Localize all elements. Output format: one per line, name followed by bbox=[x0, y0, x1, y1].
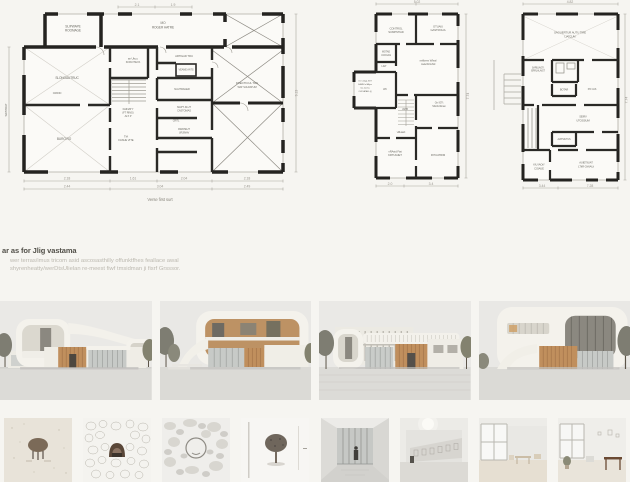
interior-panel-room bbox=[400, 418, 468, 482]
room-label: BURO RO bbox=[57, 137, 72, 141]
material-swatch-1[interactable] bbox=[4, 418, 72, 482]
room-label: KOKOTEYA bbox=[126, 60, 141, 64]
interior-photo-4[interactable] bbox=[558, 418, 626, 482]
thumbnail-strip bbox=[4, 418, 626, 468]
room-label: LTItR GIAIAUt bbox=[578, 165, 594, 169]
room-label: KRTUIAIET bbox=[388, 153, 402, 157]
room-label: AUIETIUIAT bbox=[579, 161, 593, 165]
exterior-render-2[interactable] bbox=[160, 301, 312, 400]
room-label: RWATEUT bbox=[178, 127, 190, 131]
swatch-pattern-circle bbox=[162, 418, 230, 482]
svg-text:7.74: 7.74 bbox=[625, 97, 629, 104]
svg-text:2.1: 2.1 bbox=[135, 3, 140, 7]
render-3-scene bbox=[319, 301, 471, 400]
render-2-scene bbox=[160, 301, 312, 400]
room-label: WAT SULDATUM bbox=[237, 85, 256, 89]
room-label: LIATCUM bbox=[565, 35, 577, 39]
swatch-tree-render bbox=[241, 418, 309, 482]
room-label: BOTAR bbox=[560, 88, 568, 92]
plan-caption: Verse first surt bbox=[147, 197, 173, 202]
svg-text:2.44: 2.44 bbox=[64, 185, 71, 189]
room-label: COIAUE bbox=[534, 167, 544, 171]
exterior-render-row bbox=[0, 301, 630, 400]
svg-text:7.74: 7.74 bbox=[466, 93, 470, 100]
svg-text:3.44: 3.44 bbox=[539, 184, 546, 188]
interior-photo-2[interactable] bbox=[400, 418, 468, 482]
room-label: VEANE AATS bbox=[179, 68, 194, 72]
room-label: SLONOAUTRUC bbox=[55, 76, 79, 80]
room-label: MAPT JILUT bbox=[177, 105, 191, 109]
svg-text:5.02: 5.02 bbox=[414, 0, 421, 4]
exterior-render-1[interactable] bbox=[0, 301, 152, 400]
room-label: (FT RING) bbox=[122, 111, 133, 115]
plan-a-outline bbox=[24, 14, 283, 172]
summary-line-2: shyrenheatty/werDtsUlielan re-meest fiwf… bbox=[10, 266, 422, 273]
interior-window-room bbox=[479, 418, 547, 482]
room-label: WC bbox=[383, 88, 387, 91]
room-label: CRITL bbox=[173, 120, 180, 123]
svg-text:2.0: 2.0 bbox=[388, 182, 393, 186]
room-label: ALT. P bbox=[125, 114, 132, 118]
room-label: ERRLALAIST bbox=[531, 70, 545, 73]
room-label: meleSOuNd bbox=[421, 62, 436, 66]
room-label: SIGUtd limten bbox=[432, 105, 446, 108]
plan-c-porch-steps bbox=[494, 60, 521, 110]
floor-plan-upper-1: CONTROL SUMPSTIAD OTUAIU GASTROLIA MOTAD… bbox=[338, 0, 476, 192]
side-label: SAISTRUT bbox=[4, 103, 8, 116]
svg-text:3.4: 3.4 bbox=[429, 182, 434, 186]
summary-heading: ar as for Jlig vastama bbox=[2, 246, 422, 255]
room-label: KIU IAOtY bbox=[533, 163, 545, 167]
interior-photo-1[interactable] bbox=[321, 418, 389, 482]
interior-photo-3[interactable] bbox=[479, 418, 547, 482]
summary-line-1: wer terras/imus tricom asid ascosasthill… bbox=[10, 258, 422, 265]
material-swatch-4[interactable] bbox=[241, 418, 309, 482]
room-label: KAMM al IAlyre bbox=[358, 83, 373, 86]
room-label: ARTIGAD TRU bbox=[175, 54, 193, 58]
svg-text:4.82: 4.82 bbox=[567, 0, 574, 4]
room-label: SAGUERTUR AUTU TIRE bbox=[554, 31, 586, 35]
svg-text:2.18: 2.18 bbox=[64, 177, 71, 181]
render-4-scene bbox=[479, 301, 630, 400]
room-label: SUMPSTIAD bbox=[388, 30, 403, 34]
floor-plan-upper-2: SAGUERTUR AUTU TIRE LIATCUM SARILIAGTt E… bbox=[486, 0, 630, 192]
room-label: UTOSSIUM bbox=[576, 119, 590, 123]
room-label: PO CAS bbox=[588, 88, 597, 91]
room-label: CRIOD bbox=[53, 91, 62, 95]
exterior-render-4[interactable] bbox=[479, 301, 630, 400]
svg-text:2.04: 2.04 bbox=[181, 177, 188, 181]
svg-text:2.18: 2.18 bbox=[244, 177, 251, 181]
room-label: URJINAV bbox=[179, 131, 190, 135]
room-label: UCOGAS bbox=[381, 54, 391, 57]
room-label: vRLiasrit bbox=[397, 131, 406, 134]
svg-text:9.13: 9.13 bbox=[295, 90, 299, 97]
room-label: NAUTRAGER bbox=[174, 87, 190, 91]
room-label: ROOMAGE bbox=[65, 29, 81, 33]
render-1-scene bbox=[0, 301, 152, 400]
svg-text:2.49: 2.49 bbox=[244, 185, 251, 189]
room-label: FASUE VITE bbox=[118, 138, 133, 142]
room-label: OWI IATAR. (t) bbox=[359, 90, 372, 93]
room-label: ASTB bbox=[402, 108, 408, 111]
svg-text:3.04: 3.04 bbox=[157, 185, 164, 189]
floor-plan-ground: SLIPWAPE ROOMAGE MO ROGER HATRE SLONOAUT… bbox=[0, 0, 322, 210]
room-label: FAINATY bbox=[123, 107, 134, 111]
svg-text:7.28: 7.28 bbox=[587, 184, 594, 188]
interior-table-room bbox=[558, 418, 626, 482]
svg-text:1.61: 1.61 bbox=[130, 177, 137, 181]
room-label: AIATSIUTUS bbox=[558, 138, 571, 141]
room-label: SEIRV bbox=[579, 115, 587, 119]
room-label: MO bbox=[161, 21, 167, 25]
interior-corridor bbox=[321, 418, 389, 482]
swatch-pebble-arch bbox=[83, 418, 151, 482]
svg-text:1.9: 1.9 bbox=[171, 3, 176, 7]
room-label: On IGTt bbox=[435, 101, 444, 105]
swatch-tree-sketch bbox=[4, 418, 72, 482]
room-label: tias lucima bbox=[360, 87, 370, 90]
room-label: LIGT bbox=[382, 65, 388, 68]
room-label: ROGER HATRE bbox=[152, 26, 174, 30]
room-label: FRECTICUL TRE bbox=[236, 81, 258, 85]
material-swatch-3[interactable] bbox=[162, 418, 230, 482]
material-swatch-2[interactable] bbox=[83, 418, 151, 482]
room-label: CASTOMAS bbox=[177, 109, 191, 113]
exterior-render-3[interactable] bbox=[319, 301, 471, 400]
project-summary: ar as for Jlig vastama wer terras/imus t… bbox=[2, 246, 422, 273]
room-label: On Crilagt JGIT bbox=[358, 80, 372, 83]
room-label: GASTROLIA bbox=[430, 28, 445, 32]
room-label: RYIUATRIM bbox=[431, 153, 446, 157]
